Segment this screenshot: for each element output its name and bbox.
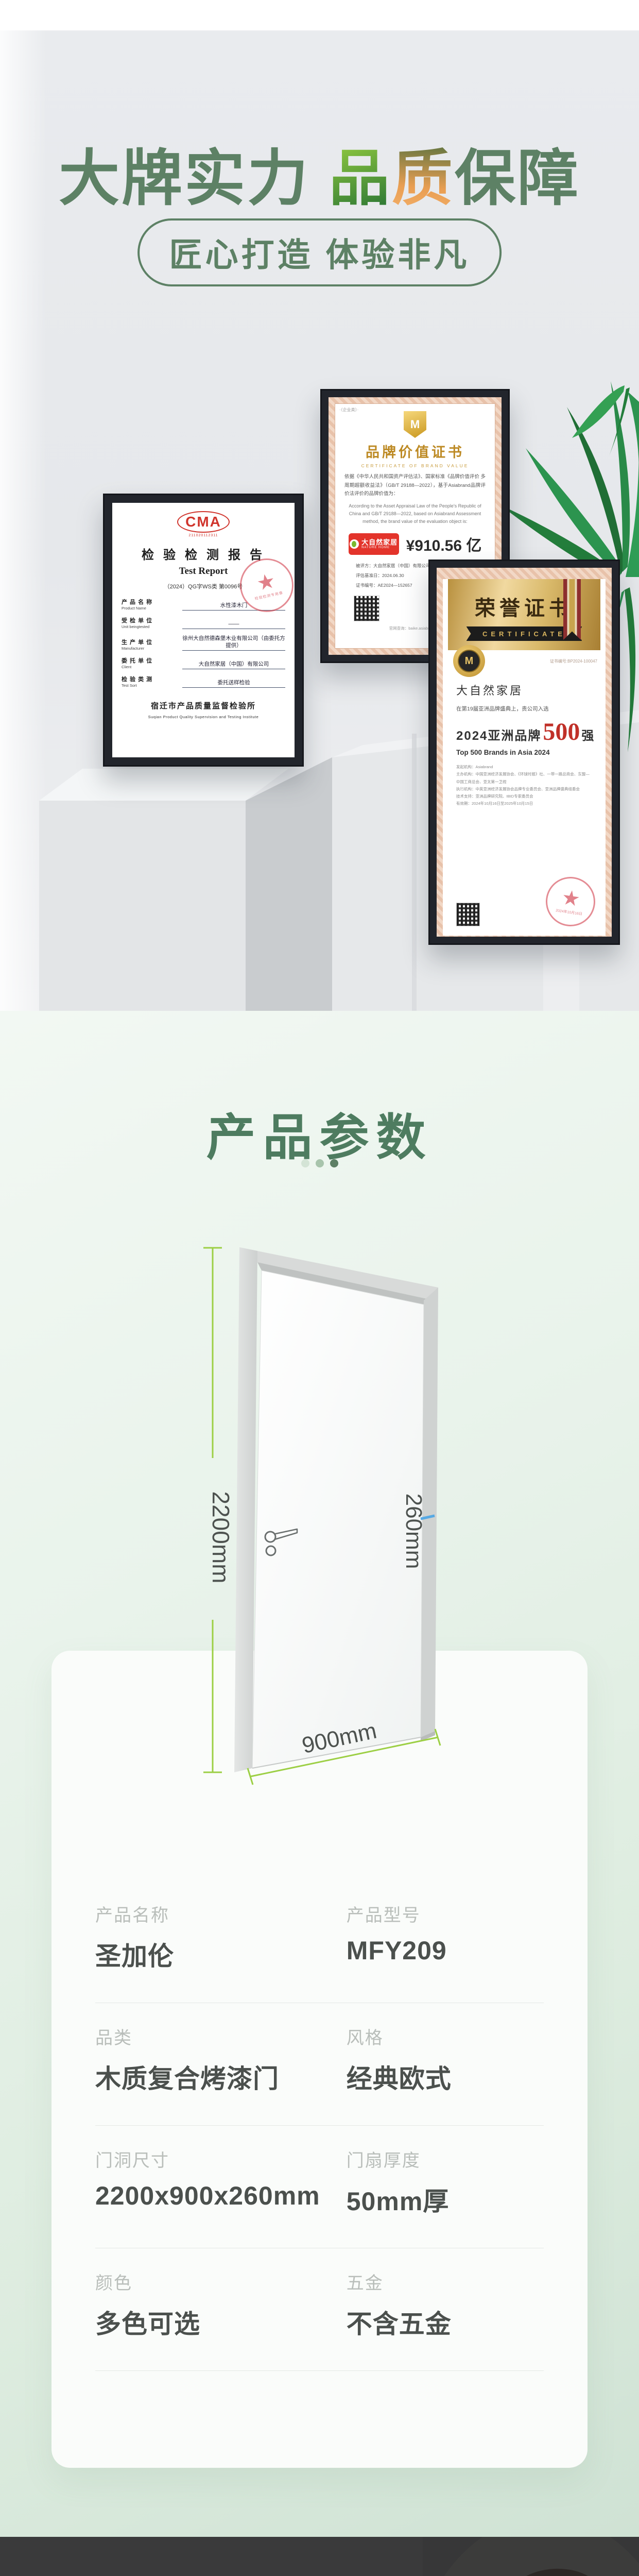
param-row: 产品名称 圣加伦 产品型号 MFY209 [51, 1880, 588, 2003]
service-section: 金保姆服务 全国1000+实体门店支持 咨询下单 › [0, 2537, 639, 2576]
certificate-test-report: CMA 211020112311 检 验 检 测 报 告 Test Report… [103, 494, 304, 767]
honor-gold-banner: 荣誉证书 CERTIFICATE [448, 579, 600, 650]
divider [95, 2370, 544, 2371]
param-value: 圣加伦 [95, 1936, 347, 1973]
field-value: 委托送样检验 [182, 679, 285, 688]
brand-cert-tag: ·（企业类）· [339, 407, 358, 413]
param-label: 五金 [347, 2269, 544, 2294]
title-dots [0, 1159, 639, 1167]
stamp-star-icon: ★ [255, 570, 277, 595]
honor-meta: 执行机构：中英亚洲经济发展协会品牌专业委员会、亚洲品牌盛典组委会 [456, 786, 592, 793]
param-label: 产品名称 [95, 1901, 347, 1926]
param-value: 不含五金 [347, 2303, 544, 2341]
test-org-cn: 宿迁市产品质量监督检验所 [122, 700, 285, 711]
nature-home-en: NATURE HOME [361, 546, 390, 549]
hero-title-zhi: 质 [392, 145, 455, 213]
cma-logo: CMA [177, 511, 230, 533]
brand-value-row: 大自然家居 NATURE HOME ¥910.56 亿 [340, 533, 490, 555]
honor-line1: 在第19届亚洲品牌盛典上，贵公司入选 [456, 705, 606, 713]
param-value: 经典欧式 [347, 2058, 544, 2095]
field-label-cn: 检 验 类 测 [122, 675, 182, 683]
product-detail-page: 大牌实力 品质保障 匠心打造 体验非凡 [0, 0, 639, 2576]
customer-service-agent-photo [423, 2537, 639, 2576]
red-seal-stamp: ★ 2024年10月16日 [543, 874, 598, 929]
honor-meta: 技术支持：亚洲品牌研究院、IBID专家委员会 [456, 793, 592, 800]
hero-title-pin: 品 [329, 145, 392, 213]
award-suffix: 强 [581, 725, 595, 743]
ribbon-icon [563, 579, 581, 640]
field-row: 检 验 类 测 Test Sort 委托送样检验 [122, 675, 285, 688]
honor-award-line: 2024亚洲品牌 500 强 [456, 718, 606, 746]
honor-meta: 有效期：2024年10月16日至2025年10月15日 [456, 800, 592, 807]
dim-depth-label: 260mm [401, 1494, 426, 1569]
field-label-en: Test Sort [122, 683, 182, 688]
dot-icon [330, 1159, 338, 1167]
param-label: 门扇厚度 [347, 2146, 544, 2172]
test-org-en: Suqian Product Quality Supervision and T… [122, 715, 285, 719]
cma-mark: CMA 211020112311 [122, 511, 285, 537]
stamp-star-icon: ★ [560, 887, 581, 910]
field-label-en: Unit beingtested [122, 624, 182, 629]
param-row: 品类 木质复合烤漆门 风格 经典欧式 [51, 2003, 588, 2125]
param-label: 产品型号 [347, 1901, 544, 1926]
nature-home-logo: 大自然家居 NATURE HOME [349, 533, 399, 555]
hero-title-right: 保障 [455, 145, 580, 213]
field-label-en: Client [122, 665, 182, 669]
gold-medal-icon: M [404, 411, 426, 438]
brand-cert-title: 品牌价值证书 [340, 441, 490, 461]
field-row: 生 产 单 位 Manufacturer 徐州大自然德森堡木业有限公司（由委托方… [122, 635, 285, 651]
field-label-cn: 生 产 单 位 [122, 638, 182, 646]
brand-value-amount: ¥910.56 亿 [406, 533, 482, 555]
param-value: 木质复合烤漆门 [95, 2058, 347, 2095]
certificate-honor: 荣誉证书 CERTIFICATE M 证书编号:BP2024-100047 大自… [428, 560, 620, 945]
field-label-cn: 产 品 名 称 [122, 598, 182, 606]
hero-subtitle-pill: 匠心打造 体验非凡 [137, 218, 502, 286]
field-value: 徐州大自然德森堡木业有限公司（由委托方提供） [182, 635, 285, 651]
nature-home-leaf-icon [350, 539, 359, 549]
dot-icon [301, 1159, 309, 1167]
honor-meta: 主办机构：中国亚洲经济发展协会、《环球时报》社、一带一路总商会、东盟—中国工商总… [456, 771, 592, 786]
brand-cert-paragraph-cn: 依据《中华人民共和国资产评估法》、国家标准《品牌价值评价 多周期超额收益法》（G… [344, 473, 486, 499]
honor-metas: 发起机构：Asiabrand 主办机构：中国亚洲经济发展协会、《环球时报》社、一… [456, 764, 592, 808]
dot-icon [316, 1159, 324, 1167]
dim-height-label: 2200mm [208, 1492, 234, 1584]
hero-title: 大牌实力 品质保障 [0, 129, 639, 217]
param-value: MFY209 [347, 1936, 544, 1965]
brand-cert-subtitle: CERTIFICATE OF BRAND VALUE [340, 463, 490, 468]
cma-number: 211020112311 [122, 534, 285, 537]
param-value: 多色可选 [95, 2303, 347, 2341]
param-row: 颜色 多色可选 五金 不含五金 [51, 2248, 588, 2370]
param-label: 门洞尺寸 [95, 2146, 347, 2172]
honor-medal-icon: M [453, 645, 485, 677]
honor-meta: 发起机构：Asiabrand [456, 764, 592, 771]
param-row: 门洞尺寸 2200x900x260mm 门扇厚度 50mm厚 [51, 2126, 588, 2248]
qr-code [456, 903, 480, 926]
field-label-en: Manufacturer [122, 646, 182, 651]
hero-section: 大牌实力 品质保障 匠心打造 体验非凡 [0, 0, 639, 1011]
door-dimension-diagram: 2200mm 260mm 900mm [170, 1227, 469, 1876]
qr-code [354, 596, 379, 621]
honor-brand-name: 大自然家居 [456, 682, 606, 698]
field-value: —— [182, 620, 285, 629]
honor-award-en: Top 500 Brands in Asia 2024 [456, 749, 606, 756]
brand-cert-paragraph-en: According to the Asset Appraisal Law of … [343, 502, 487, 526]
hero-title-left: 大牌实力 [59, 145, 310, 213]
param-label: 风格 [347, 2024, 544, 2049]
honor-medal-letter: M [458, 650, 480, 672]
param-label: 品类 [95, 2024, 347, 2049]
field-value: 大自然家居（中国）有限公司 [182, 660, 285, 669]
field-row: 受 检 单 位 Unit beingtested —— [122, 616, 285, 629]
field-label-cn: 受 检 单 位 [122, 616, 182, 624]
field-label-cn: 委 托 单 位 [122, 656, 182, 665]
award-number: 500 [543, 718, 580, 746]
award-prefix: 2024亚洲品牌 [456, 725, 541, 743]
nature-home-cn: 大自然家居 [361, 539, 398, 546]
product-params-section: 产品参数 [0, 1011, 639, 2537]
params-section-title: 产品参数 [0, 1097, 639, 1169]
field-row: 委 托 单 位 Client 大自然家居（中国）有限公司 [122, 656, 285, 669]
param-label: 颜色 [95, 2269, 347, 2294]
field-label-en: Product Name [122, 606, 182, 611]
param-value: 50mm厚 [347, 2181, 544, 2218]
param-value: 2200x900x260mm [95, 2181, 347, 2211]
